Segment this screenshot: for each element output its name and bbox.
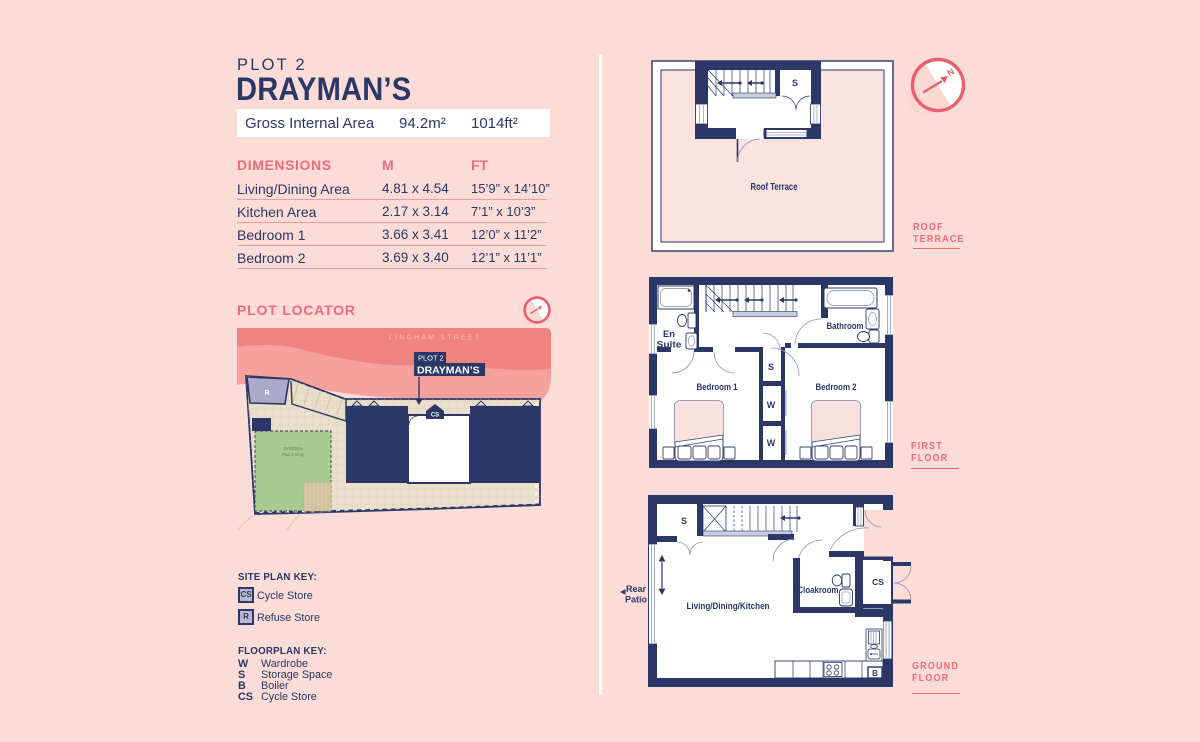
svg-text:B: B <box>872 669 878 678</box>
svg-text:DRAYMAN’S: DRAYMAN’S <box>417 365 480 377</box>
svg-text:Bedroom 1: Bedroom 1 <box>697 382 739 393</box>
svg-text:LINGHAM STREET: LINGHAM STREET <box>389 335 481 342</box>
svg-text:Suite: Suite <box>657 340 682 351</box>
svg-text:S: S <box>768 362 774 372</box>
svg-text:Cloakroom: Cloakroom <box>798 585 839 596</box>
svg-text:En: En <box>663 329 675 340</box>
svg-text:W: W <box>767 400 776 410</box>
svg-text:S: S <box>792 78 798 88</box>
svg-text:S: S <box>681 516 687 526</box>
svg-text:R: R <box>264 390 269 397</box>
svg-text:Roof Terrace: Roof Terrace <box>751 182 798 193</box>
svg-text:GARDEN: GARDEN <box>283 446 302 451</box>
svg-text:Living/Dining/Kitchen: Living/Dining/Kitchen <box>687 601 770 612</box>
svg-text:W: W <box>767 438 776 448</box>
svg-text:Bedroom 2: Bedroom 2 <box>816 382 857 393</box>
svg-text:PLOT 2: PLOT 2 <box>418 354 444 363</box>
svg-text:CS: CS <box>431 413 439 419</box>
svg-text:Rear: Rear <box>626 584 646 595</box>
svg-text:CS: CS <box>872 577 884 587</box>
svg-text:Plot 3 Only: Plot 3 Only <box>282 452 305 457</box>
svg-text:Bathroom: Bathroom <box>827 321 864 332</box>
svg-text:Patio: Patio <box>625 595 647 606</box>
